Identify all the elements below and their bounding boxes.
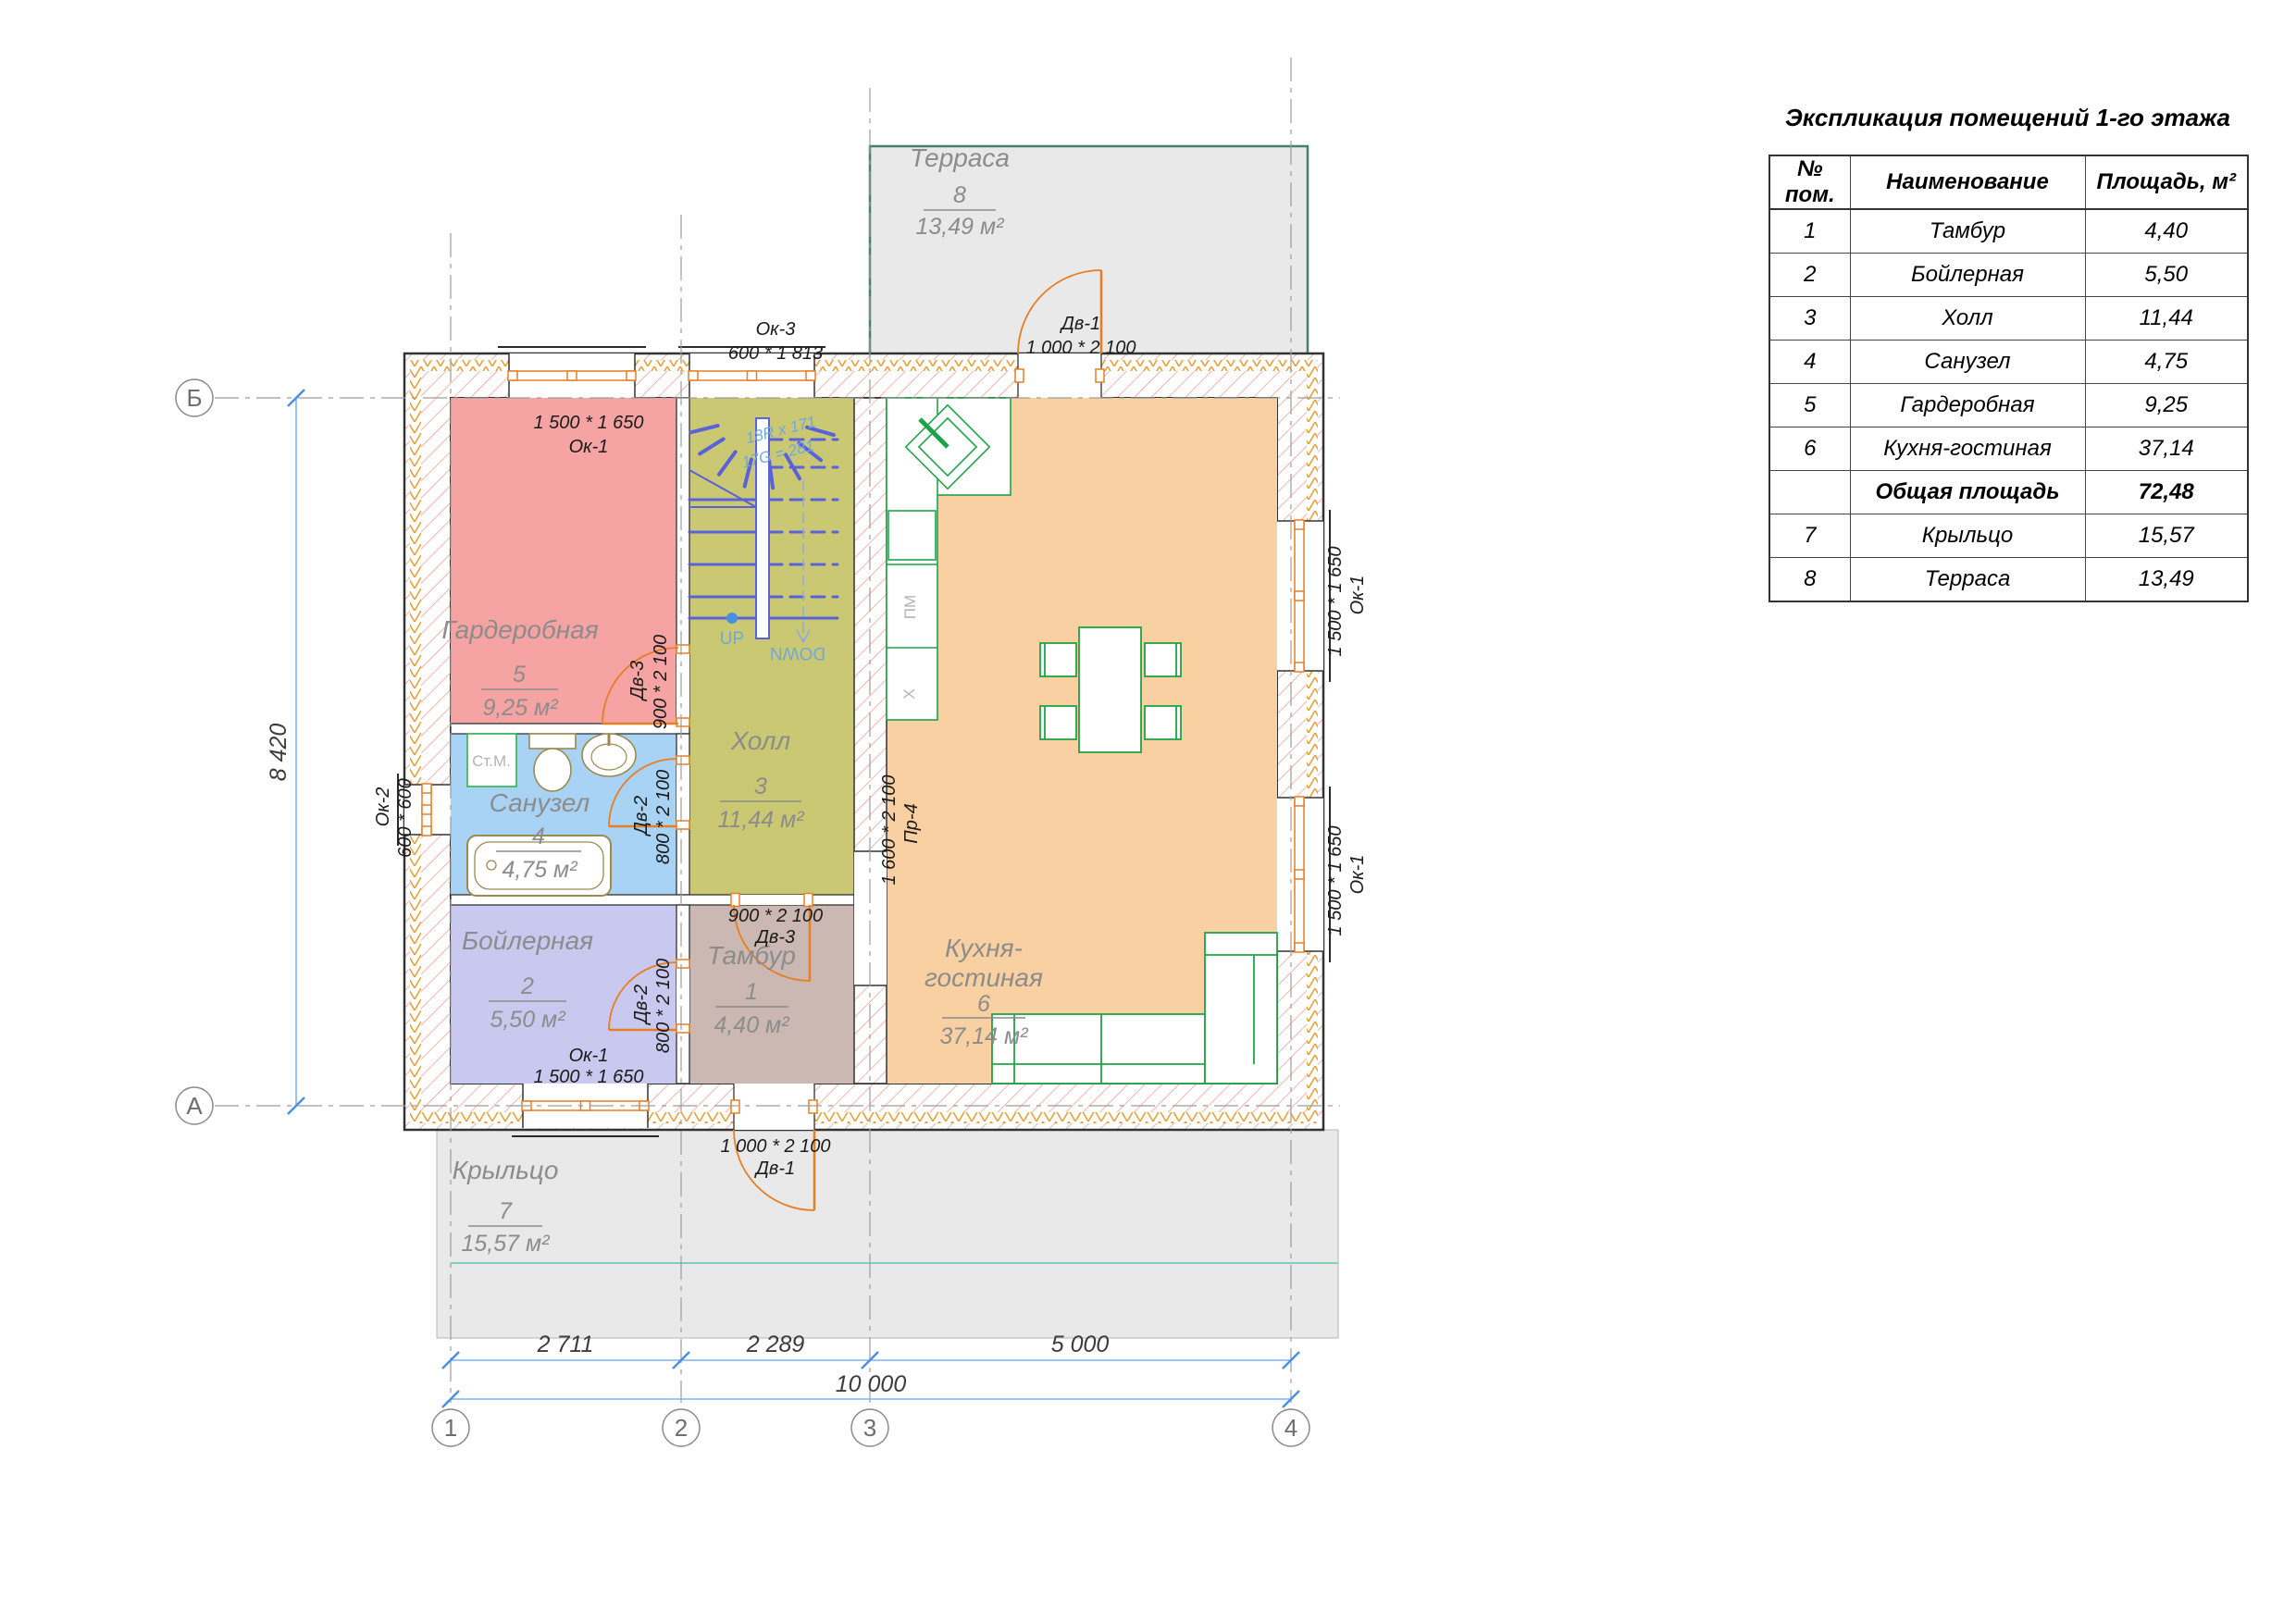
room-name: гостиная (925, 963, 1043, 992)
room-name: Гардеробная (441, 615, 598, 644)
room-name: Бойлерная (462, 926, 593, 955)
window-size: 1 500 * 1 650 (534, 413, 644, 433)
grid-label-A: А (186, 1092, 203, 1120)
room-area: 13,49 м² (916, 214, 1006, 240)
window-tag: Ок-1 (569, 1046, 609, 1066)
legend-cell-name: Крыльцо (1850, 514, 2085, 558)
window-frame-block (1295, 663, 1304, 672)
window-size: 600 * 1 813 (728, 343, 823, 364)
room-number: 8 (953, 182, 966, 208)
window-size: 1 500 * 1 650 (1325, 826, 1346, 936)
room-name: Холл (730, 726, 791, 755)
legend-panel: Экспликация помещений 1-го этажа № пом. … (1769, 104, 2247, 602)
window-tag: Ок-1 (569, 437, 609, 457)
door-post (731, 894, 739, 907)
legend-cell-area: 4,40 (2085, 209, 2248, 254)
legend-cell-num: 1 (1769, 209, 1850, 254)
room-area: 5,50 м² (490, 1007, 566, 1033)
grid-label-1: 1 (444, 1414, 457, 1442)
legend-cell-area: 5,50 (2085, 254, 2248, 297)
door-opening (734, 895, 810, 905)
washing-machine-label: Ст.М. (472, 752, 511, 770)
legend-col-num: № пом. (1769, 155, 1850, 209)
room-number: 1 (745, 979, 758, 1005)
legend-cell-name: Терраса (1850, 558, 2085, 602)
stove-icon (888, 511, 936, 560)
door-tag: Дв-1 (754, 1158, 795, 1179)
grid-label-3: 3 (863, 1414, 876, 1442)
room-name: Санузел (490, 788, 590, 817)
room-area: 15,57 м² (462, 1231, 552, 1257)
stair-up-label: UP (720, 629, 744, 649)
legend-cell-area: 13,49 (2085, 558, 2248, 602)
door-size: 1 000 * 2 100 (721, 1136, 831, 1157)
legend-row: 4Санузел4,75 (1769, 341, 2248, 384)
room-area: 4,75 м² (502, 857, 578, 883)
door-opening (676, 962, 689, 1030)
legend-row: 2Бойлерная5,50 (1769, 254, 2248, 297)
room-number: 6 (977, 991, 990, 1017)
window-frame-block (1295, 591, 1304, 601)
door-opening (676, 759, 689, 826)
door-tag: Дв-1 (1060, 314, 1100, 334)
room-number: 7 (499, 1198, 513, 1224)
legend-cell-num: 2 (1769, 254, 1850, 297)
door-post (731, 1100, 739, 1113)
opening-tag: Пр-4 (901, 803, 922, 843)
legend-cell-name: Общая площадь (1850, 471, 2085, 514)
door-post (676, 960, 689, 968)
window-frame-block (689, 371, 698, 380)
legend-cell-name: Тамбур (1850, 209, 2085, 254)
legend-cell-area: 15,57 (2085, 514, 2248, 558)
room-number: 3 (754, 774, 767, 799)
legend-cell-name: Холл (1850, 297, 2085, 341)
legend-table: № пом. Наименование Площадь, м² 1Тамбур4… (1769, 155, 2249, 602)
insulation-left (410, 360, 421, 1123)
door-post (676, 645, 689, 653)
legend-cell-area: 37,14 (2085, 427, 2248, 471)
window-size: 1 500 * 1 650 (534, 1067, 644, 1087)
dim-value: 2 289 (746, 1332, 805, 1357)
door-size: 900 * 2 100 (651, 635, 671, 729)
window-tag: Ок-1 (1347, 855, 1368, 895)
room-number: 2 (520, 973, 534, 999)
legend-row: 1Тамбур4,40 (1769, 209, 2248, 254)
window-frame-block (567, 371, 577, 380)
room-area: 37,14 м² (940, 1023, 1030, 1049)
legend-cell-name: Гардеробная (1850, 384, 2085, 427)
legend-row: 5Гардеробная9,25 (1769, 384, 2248, 427)
legend-cell-num: 6 (1769, 427, 1850, 471)
stair-down-label: DOWN (770, 643, 825, 663)
dishwasher-label: ПМ (901, 595, 919, 619)
opening-size: 1 600 * 2 100 (879, 775, 900, 886)
legend-cell-name: Кухня-гостиная (1850, 427, 2085, 471)
legend-cell-area: 9,25 (2085, 384, 2248, 427)
legend-cell-area: 11,44 (2085, 297, 2248, 341)
legend-row: 7Крыльцо15,57 (1769, 514, 2248, 558)
legend-row: 8Терраса13,49 (1769, 558, 2248, 602)
dim-value: 2 711 (537, 1332, 594, 1357)
legend-cell-name: Бойлерная (1850, 254, 2085, 297)
legend-row: 6Кухня-гостиная37,14 (1769, 427, 2248, 471)
room-name: Крыльцо (453, 1156, 559, 1184)
legend-cell-area: 72,48 (2085, 471, 2248, 514)
legend-cell-num: 3 (1769, 297, 1850, 341)
door-tag: Дв-2 (631, 985, 652, 1025)
room-number: 5 (513, 662, 526, 688)
washbasin-bowl (591, 744, 627, 770)
door-opening (1018, 353, 1101, 398)
door-tag: Дв-3 (627, 661, 648, 701)
window-size: 1 500 * 1 650 (1325, 547, 1346, 657)
window-frame-block (627, 371, 636, 380)
window-frame-block (508, 371, 517, 380)
door-size: 800 * 2 100 (653, 770, 674, 864)
legend-cell-num: 8 (1769, 558, 1850, 602)
legend-row: 3Холл11,44 (1769, 297, 2248, 341)
legend-col-area: Площадь, м² (2085, 155, 2248, 209)
window-frame-block (422, 784, 431, 793)
door-size: 900 * 2 100 (728, 906, 823, 926)
legend-col-name: Наименование (1850, 155, 2085, 209)
grid-label-B: Б (186, 384, 202, 412)
legend-title: Экспликация помещений 1-го этажа (1769, 104, 2247, 132)
window-frame-block (1295, 870, 1304, 879)
fridge-label: X (900, 688, 918, 699)
room-name: Кухня- (945, 934, 1023, 962)
floor-plan-sheet: { "legend": { "title": "Экспликация поме… (0, 0, 2296, 1623)
legend-header-row: № пом. Наименование Площадь, м² (1769, 155, 2248, 209)
room-area: 4,40 м² (714, 1012, 790, 1038)
door-post (1015, 369, 1024, 382)
dim-height-value: 8 420 (266, 724, 292, 782)
dim-value: 5 000 (1051, 1332, 1110, 1357)
window-frame-block (422, 805, 431, 814)
window-frame-block (748, 371, 757, 380)
legend-cell-num: 7 (1769, 514, 1850, 558)
room-name: Терраса (910, 143, 1010, 172)
door-post (676, 1024, 689, 1033)
room-area: 11,44 м² (717, 807, 805, 833)
window-size: 600 * 600 (395, 778, 416, 858)
stair-start-dot (726, 613, 738, 624)
grid-label-2: 2 (675, 1414, 688, 1442)
window-frame-block (1295, 520, 1304, 529)
window-tag: Ок-3 (756, 319, 796, 340)
door-post (676, 821, 689, 829)
door-tag: Дв-3 (754, 927, 795, 948)
insulation-right (1307, 360, 1318, 1123)
window-frame-block (1295, 797, 1304, 806)
legend-cell-num: 4 (1769, 341, 1850, 384)
window-tag: Ок-1 (1347, 576, 1368, 615)
window-frame-block (422, 826, 431, 836)
door-post (676, 718, 689, 726)
door-post (809, 1100, 817, 1113)
legend-cell-area: 4,75 (2085, 341, 2248, 384)
door-post (676, 756, 689, 764)
legend-cell-num: 5 (1769, 384, 1850, 427)
window-frame-block (806, 371, 815, 380)
window-frame-block (1295, 943, 1304, 952)
toilet-icon (534, 749, 571, 791)
window-tag: Ок-2 (373, 787, 393, 827)
door-size: 1 000 * 2 100 (1026, 338, 1136, 358)
dim-total-value: 10 000 (836, 1371, 907, 1397)
door-tag: Дв-2 (631, 796, 652, 836)
legend-row: Общая площадь72,48 (1769, 471, 2248, 514)
porch-area (437, 1130, 1338, 1338)
dining-table (1079, 627, 1141, 752)
toilet-tank (529, 734, 576, 749)
door-post (1096, 369, 1104, 382)
door-size: 800 * 2 100 (653, 959, 674, 1053)
legend-cell-name: Санузел (1850, 341, 2085, 384)
legend-cell-num (1769, 471, 1850, 514)
porch-floor (437, 1130, 1338, 1338)
door-post (804, 894, 813, 907)
door-opening (676, 648, 689, 724)
room-number: 4 (532, 824, 545, 849)
room-area: 9,25 м² (482, 695, 559, 721)
door-opening (734, 1084, 814, 1130)
grid-label-4: 4 (1285, 1414, 1297, 1442)
